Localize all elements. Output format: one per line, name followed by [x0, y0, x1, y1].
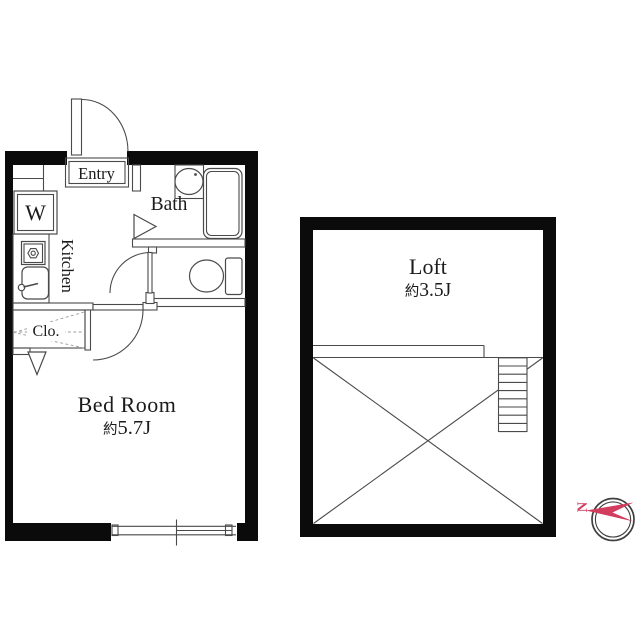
- closet-label: Clo.: [27, 322, 65, 341]
- kitchen-sink: [22, 267, 49, 299]
- bath-left-wall: [133, 165, 141, 191]
- toilet-door-swing-arc: [110, 253, 151, 294]
- loft-area-prefix: 約: [405, 284, 420, 300]
- compass-north-label: N: [574, 498, 592, 516]
- bedroom-door-swing-arc: [93, 310, 143, 360]
- washer-label: W: [14, 191, 57, 234]
- floorplan-page: Entry W Bath Kitchen Clo. Bed Room 約5.7J…: [0, 0, 640, 640]
- loft-floor-edge: [313, 346, 543, 358]
- bath-label: Bath: [131, 193, 207, 217]
- stove-outer: [22, 242, 46, 265]
- closet-right-wall: [85, 310, 91, 350]
- toilet-tank: [226, 258, 243, 295]
- bath-faucet-dot: [194, 173, 197, 176]
- toilet-bottom-wall: [147, 299, 245, 307]
- bath-sink: [175, 169, 203, 195]
- toilet-door: [110, 253, 154, 304]
- compass-icon: [586, 499, 634, 541]
- closet: [13, 310, 85, 375]
- bath-bottom-wall: [133, 239, 246, 247]
- bedroom-area-prefix: 約: [103, 422, 118, 438]
- bathtub-outer: [204, 169, 243, 239]
- bedroom-label: Bed Room: [47, 392, 207, 418]
- washer-niche-lines: [13, 165, 44, 191]
- loft-ladder: [499, 358, 528, 433]
- loft-label: Loft: [358, 253, 498, 280]
- toilet-door-leaf: [148, 253, 152, 294]
- bedroom-door-leaf: [93, 305, 143, 311]
- window-opening: [111, 523, 237, 541]
- bedroom-top-wall: [13, 303, 93, 310]
- kitchen-label: Kitchen: [56, 226, 78, 306]
- loft-area-value: 3.5J: [419, 280, 451, 301]
- loft-area-label: 約3.5J: [358, 280, 498, 302]
- entry-door-swing-arc: [82, 100, 128, 152]
- entry-label: Entry: [66, 161, 127, 186]
- floorplan-drawing: [0, 0, 640, 640]
- bedroom-area-label: 約5.7J: [47, 417, 207, 439]
- bath-folding-door: [134, 215, 156, 239]
- bedroom-door: [93, 305, 143, 361]
- bedroom-area-value: 5.7J: [117, 417, 151, 439]
- toilet-bowl: [190, 260, 224, 292]
- closet-folding-door: [28, 352, 46, 375]
- toilet: [190, 258, 243, 295]
- compass-needle: [586, 503, 634, 522]
- closet-ledge: [13, 348, 30, 355]
